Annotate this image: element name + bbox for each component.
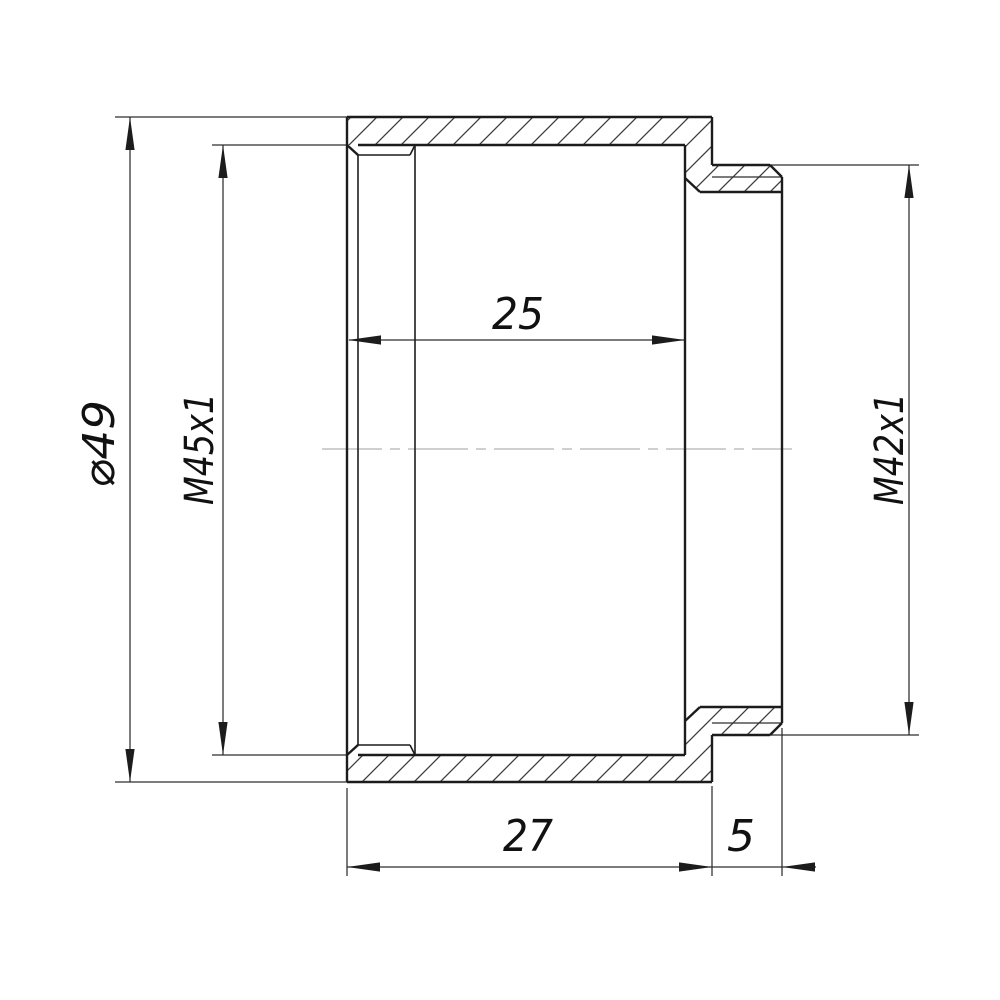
arrow-m42-bottom — [904, 702, 913, 735]
arrow-d49-bottom — [125, 749, 134, 782]
dim-label-outer-diameter: ⌀49 — [74, 400, 125, 488]
part-outline-segment — [347, 145, 358, 155]
arrow-25-left — [348, 335, 381, 344]
arrow-d49-top — [125, 117, 134, 150]
arrow-27-left — [347, 862, 380, 871]
dim-label-bore-depth: 25 — [492, 289, 544, 340]
arrow-m45-top — [218, 145, 227, 178]
arrow-m45-bottom — [218, 722, 227, 755]
dim-label-body-length: 27 — [503, 811, 553, 862]
technical-drawing-page: ⌀49M45x125M42x1275 — [0, 0, 1000, 1000]
thread-lines-layer — [358, 145, 415, 755]
part-outline-segment — [347, 745, 358, 755]
technical-drawing-canvas: ⌀49M45x125M42x1275 — [0, 0, 1000, 1000]
section-upper-wall — [347, 117, 782, 192]
arrow-27-right — [679, 862, 712, 871]
arrow-5-right-out — [782, 862, 815, 871]
arrow-25-right — [652, 335, 685, 344]
dim-label-left-thread: M45x1 — [177, 393, 223, 505]
dim-label-right-thread: M42x1 — [867, 393, 913, 505]
arrow-m42-top — [904, 165, 913, 198]
section-lower-wall — [347, 707, 782, 782]
dim-label-barrel-length: 5 — [727, 811, 755, 862]
